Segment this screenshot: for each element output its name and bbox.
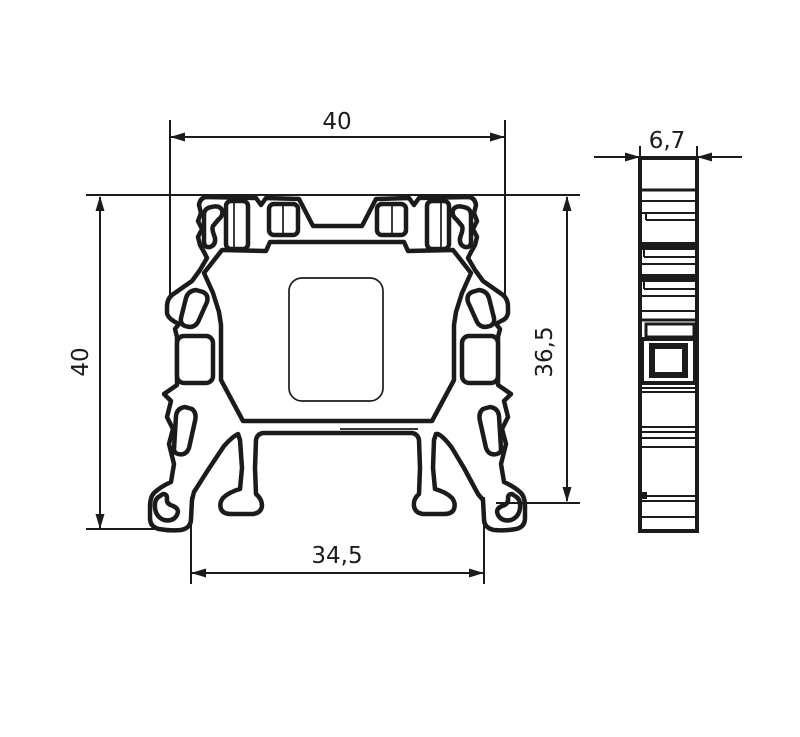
front-view xyxy=(150,197,525,530)
arrowhead-side-right xyxy=(697,153,712,162)
dim-label-side-width: 6,7 xyxy=(649,128,686,154)
arrowhead-top-right xyxy=(490,133,505,142)
clamp-slot-left-outer xyxy=(226,201,248,249)
arrowhead-top-left xyxy=(170,133,185,142)
dim-label-right-height: 36,5 xyxy=(532,326,558,377)
side-inset-band xyxy=(646,324,694,337)
side-block-hole xyxy=(652,346,685,375)
technical-drawing: 40 40 36,5 34,5 6,7 xyxy=(0,0,800,737)
arrowhead-bottom-left xyxy=(191,569,206,578)
dim-label-top-width: 40 xyxy=(322,109,351,135)
dim-label-left-height: 40 xyxy=(68,347,94,376)
clamp-slot-right-outer xyxy=(427,201,449,249)
side-clip-band-2 xyxy=(641,274,696,282)
side-square-left xyxy=(177,336,213,383)
arrowhead-right-bottom xyxy=(563,487,572,502)
arrowhead-right-top xyxy=(563,196,572,211)
arrowhead-bottom-right xyxy=(469,569,484,578)
arrowhead-left-bottom xyxy=(96,514,105,529)
arrowhead-side-left xyxy=(625,153,640,162)
side-clip-band-1 xyxy=(641,242,696,250)
dimension-right-height: 36,5 xyxy=(496,196,580,503)
side-square-right xyxy=(462,336,498,383)
drawing-canvas: 40 40 36,5 34,5 6,7 xyxy=(0,0,800,737)
dim-label-bottom-width: 34,5 xyxy=(311,543,362,569)
arrowhead-left-top xyxy=(96,196,105,211)
side-view xyxy=(640,158,697,531)
